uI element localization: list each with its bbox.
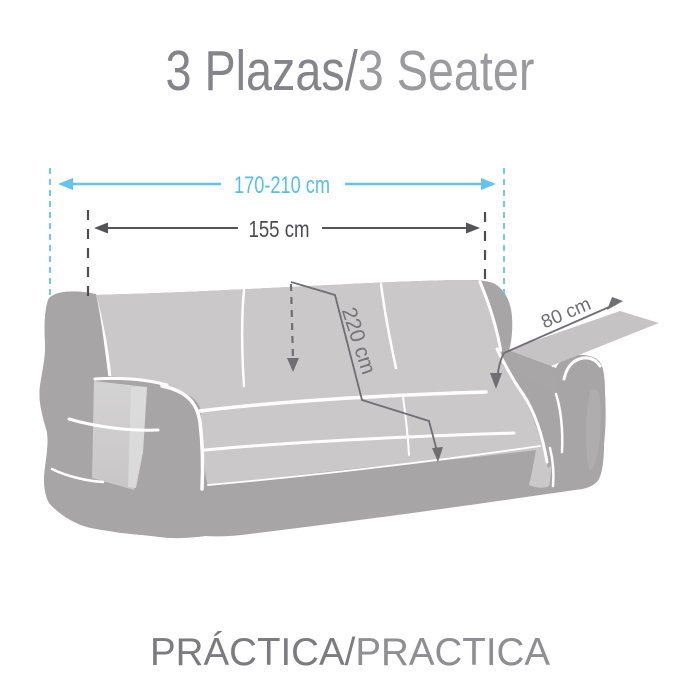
svg-text:155 cm: 155 cm: [249, 216, 310, 242]
svg-text:170-210 cm: 170-210 cm: [234, 172, 330, 199]
